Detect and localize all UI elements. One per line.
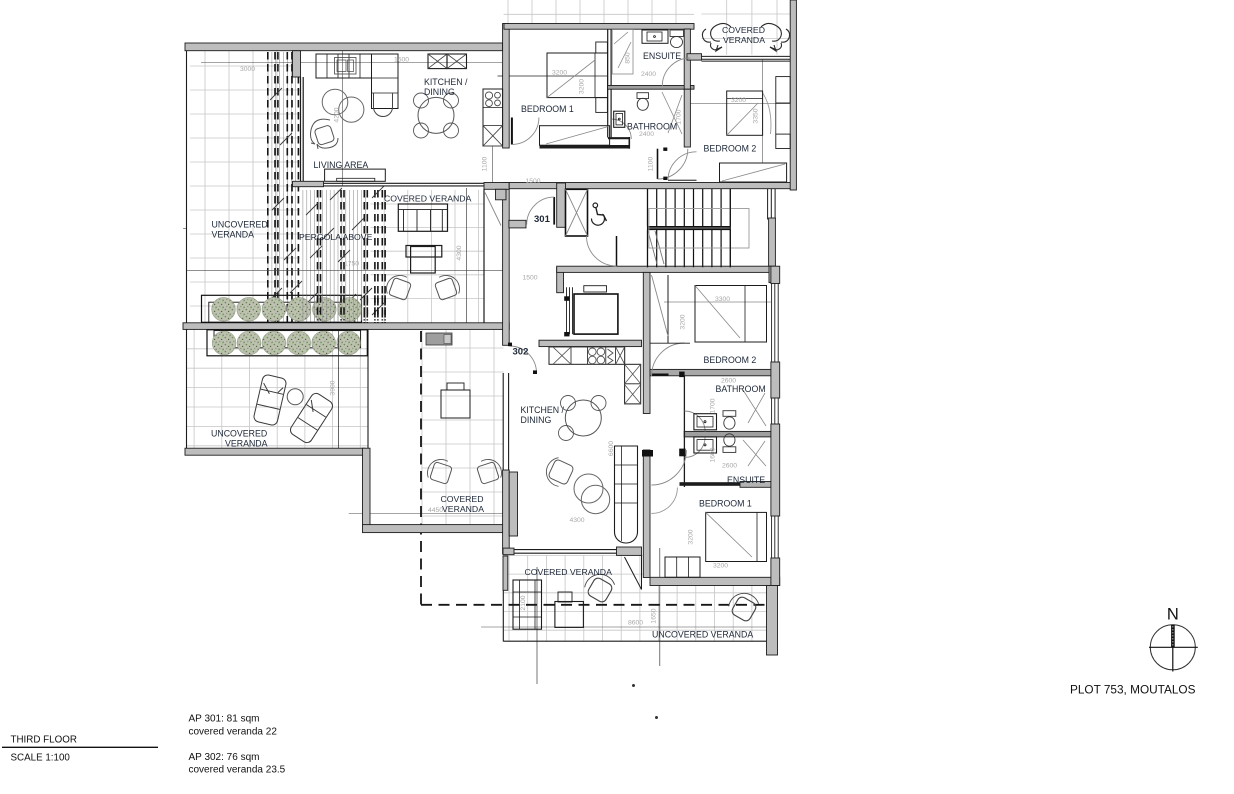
svg-text:3200: 3200 <box>688 529 695 544</box>
svg-text:LIVING AREA: LIVING AREA <box>314 160 369 170</box>
svg-text:BEDROOM 2: BEDROOM 2 <box>704 355 757 365</box>
svg-text:3200: 3200 <box>552 70 567 77</box>
svg-text:ENSUITE: ENSUITE <box>727 475 765 485</box>
svg-text:3200: 3200 <box>579 79 586 94</box>
svg-text:BEDROOM 2: BEDROOM 2 <box>704 144 757 154</box>
svg-text:COVERED: COVERED <box>722 25 765 35</box>
svg-text:AP 301: 81 sqm: AP 301: 81 sqm <box>189 714 260 725</box>
svg-text:PLOT 753, MOUTALOS: PLOT 753, MOUTALOS <box>1070 683 1196 697</box>
svg-text:covered veranda 23.5: covered veranda 23.5 <box>189 765 286 776</box>
svg-text:8600: 8600 <box>628 620 643 627</box>
svg-text:1100: 1100 <box>482 156 489 171</box>
svg-text:2100: 2100 <box>520 595 527 610</box>
svg-text:2400: 2400 <box>641 71 656 78</box>
svg-text:2600: 2600 <box>722 463 737 470</box>
svg-text:VERANDA: VERANDA <box>442 504 484 514</box>
svg-text:301: 301 <box>534 214 551 225</box>
svg-text:UNCOVERED VERANDA: UNCOVERED VERANDA <box>652 630 753 640</box>
svg-text:N: N <box>1167 606 1179 624</box>
svg-text:VERANDA: VERANDA <box>225 439 268 449</box>
svg-text:1500: 1500 <box>522 275 537 282</box>
svg-text:850: 850 <box>625 52 632 64</box>
svg-text:3200: 3200 <box>731 97 746 104</box>
svg-text:3900: 3900 <box>330 380 337 395</box>
svg-text:1500: 1500 <box>394 57 409 64</box>
svg-text:BEDROOM 1: BEDROOM 1 <box>699 499 752 509</box>
svg-text:BATHROOM: BATHROOM <box>716 384 766 394</box>
svg-text:UNCOVERED: UNCOVERED <box>211 429 267 439</box>
svg-text:4300: 4300 <box>569 517 584 524</box>
svg-text:AP 302: 76 sqm: AP 302: 76 sqm <box>189 752 260 763</box>
svg-text:1750: 1750 <box>344 261 359 268</box>
svg-text:DINING: DINING <box>424 87 455 97</box>
svg-text:BEDROOM 1: BEDROOM 1 <box>521 104 574 114</box>
svg-text:COVERED: COVERED <box>441 494 484 504</box>
svg-text:COVERED VERANDA: COVERED VERANDA <box>384 194 472 204</box>
svg-text:6600: 6600 <box>608 441 615 456</box>
svg-text:3350: 3350 <box>753 108 760 123</box>
svg-text:SCALE 1:100: SCALE 1:100 <box>11 753 71 764</box>
svg-text:COVERED VERANDA: COVERED VERANDA <box>525 567 613 577</box>
svg-text:2400: 2400 <box>639 131 654 138</box>
svg-text:4450: 4450 <box>428 507 443 514</box>
svg-text:KITCHEN /: KITCHEN / <box>424 77 468 87</box>
svg-text:3200: 3200 <box>713 563 728 570</box>
svg-text:VERANDA: VERANDA <box>212 230 255 240</box>
svg-text:VERANDA: VERANDA <box>723 35 765 45</box>
svg-text:3200: 3200 <box>680 314 687 329</box>
svg-text:BATHROOM: BATHROOM <box>627 122 677 132</box>
svg-text:1600: 1600 <box>710 447 717 462</box>
svg-text:1500: 1500 <box>525 178 540 185</box>
svg-text:ENSUITE: ENSUITE <box>643 51 681 61</box>
svg-text:1650: 1650 <box>651 608 658 623</box>
svg-text:4200: 4200 <box>334 107 341 122</box>
svg-text:DINING: DINING <box>521 415 552 425</box>
svg-text:THIRD FLOOR: THIRD FLOOR <box>11 735 77 746</box>
svg-text:1700: 1700 <box>710 398 717 413</box>
svg-text:3300: 3300 <box>715 296 730 303</box>
svg-text:KITCHEN /: KITCHEN / <box>521 405 565 415</box>
svg-text:4300: 4300 <box>456 245 463 260</box>
svg-text:1100: 1100 <box>648 156 655 171</box>
svg-text:302: 302 <box>513 347 529 358</box>
svg-text:3000: 3000 <box>240 66 255 73</box>
svg-text:PERGOLA ABOVE: PERGOLA ABOVE <box>299 232 373 242</box>
svg-text:covered veranda 22: covered veranda 22 <box>189 727 278 738</box>
svg-text:UNCOVERED: UNCOVERED <box>212 220 268 230</box>
